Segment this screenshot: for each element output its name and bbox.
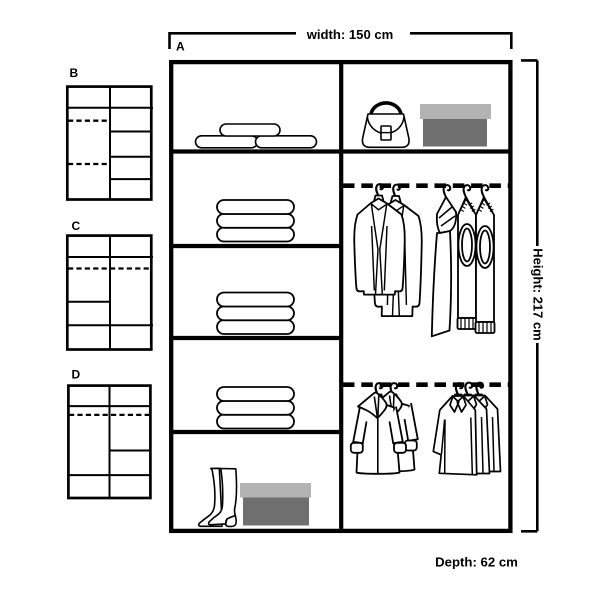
svg-text:B: B xyxy=(70,66,79,80)
svg-text:Height: 217 cm: Height: 217 cm xyxy=(531,248,546,340)
svg-text:Depth: 62 cm: Depth: 62 cm xyxy=(435,555,518,570)
svg-text:A: A xyxy=(176,40,185,54)
svg-text:C: C xyxy=(72,219,81,233)
svg-text:D: D xyxy=(72,368,81,382)
svg-text:width: 150 cm: width: 150 cm xyxy=(306,27,394,42)
